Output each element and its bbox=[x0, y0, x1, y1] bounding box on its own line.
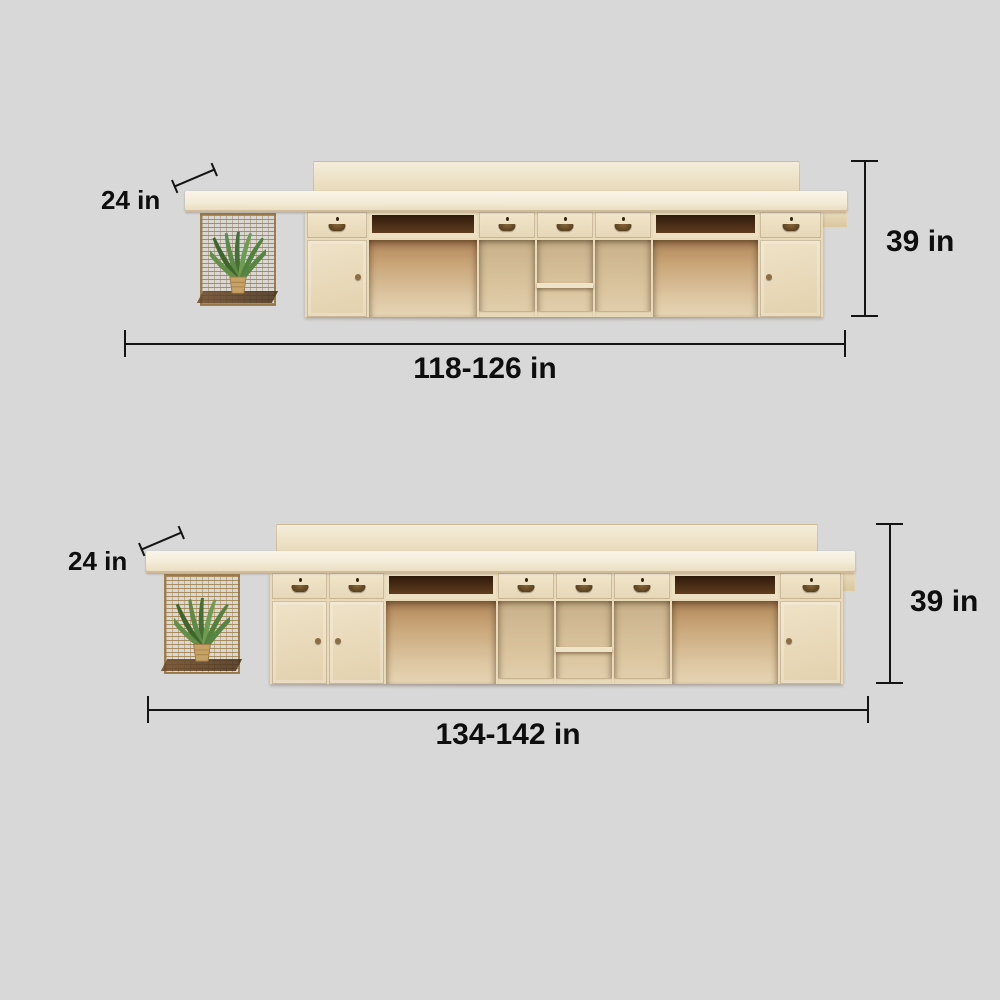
desk-countertop bbox=[185, 191, 847, 212]
open-slot bbox=[653, 212, 758, 238]
base-rail bbox=[479, 311, 535, 317]
width-dimension-line bbox=[147, 709, 869, 711]
drawer-handle-icon bbox=[291, 585, 308, 592]
open-shelf bbox=[479, 240, 535, 317]
base-rail bbox=[556, 678, 612, 684]
cabinet-door bbox=[307, 240, 367, 317]
height-dimension-line bbox=[864, 160, 866, 317]
cabinet-door bbox=[780, 601, 841, 684]
height-label: 39 in bbox=[886, 226, 954, 258]
keyhole-icon bbox=[506, 217, 509, 221]
shelf-board bbox=[537, 283, 593, 288]
drawer-column bbox=[614, 573, 670, 684]
drawer-handle-icon bbox=[634, 585, 651, 592]
door-knob-icon bbox=[786, 638, 792, 644]
width-dimension-line bbox=[124, 343, 846, 345]
keyhole-icon bbox=[356, 578, 359, 582]
drawer-column bbox=[556, 573, 612, 684]
desk-body bbox=[305, 212, 823, 317]
drawer-column bbox=[479, 212, 535, 317]
drawer bbox=[329, 573, 384, 599]
drawer-handle-icon bbox=[782, 224, 799, 231]
width-label: 134-142 in bbox=[308, 719, 708, 751]
keyhole-icon bbox=[336, 217, 339, 221]
drawer bbox=[479, 212, 535, 238]
wire-plant-cage bbox=[200, 213, 276, 306]
shelf-board bbox=[556, 647, 612, 652]
drawer-column bbox=[595, 212, 651, 317]
cabinet-door bbox=[760, 240, 821, 317]
open-shelf bbox=[614, 601, 670, 684]
drawer bbox=[307, 212, 367, 238]
right-cabinet bbox=[760, 212, 821, 317]
wire-plant-cage bbox=[164, 574, 240, 674]
open-slot bbox=[369, 212, 477, 238]
plant-icon bbox=[210, 219, 266, 300]
cabinet-door bbox=[329, 601, 384, 684]
desk-body bbox=[270, 573, 843, 684]
keyhole-icon bbox=[299, 578, 302, 582]
drawer-handle-icon bbox=[518, 585, 535, 592]
diagram-canvas: 24 in 39 in 118-126 in bbox=[0, 0, 1000, 1000]
keyhole-icon bbox=[622, 217, 625, 221]
counter-end-panel bbox=[820, 211, 847, 227]
cabinet-door bbox=[272, 601, 327, 684]
drawer-handle-icon bbox=[499, 224, 516, 231]
base-rail bbox=[614, 678, 670, 684]
open-shelf bbox=[595, 240, 651, 317]
drawer bbox=[272, 573, 327, 599]
open-shelf bbox=[556, 601, 612, 684]
open-slot bbox=[386, 573, 496, 599]
drawer bbox=[556, 573, 612, 599]
height-dimension-line bbox=[889, 523, 891, 684]
door-knob-icon bbox=[766, 274, 772, 280]
width-label: 118-126 in bbox=[285, 353, 685, 385]
figure-desk-large: 24 in 39 in 134-142 in bbox=[0, 0, 1000, 1000]
desk-backsplash bbox=[276, 524, 818, 553]
drawer-handle-icon bbox=[348, 585, 365, 592]
height-label: 39 in bbox=[910, 586, 978, 618]
base-rail bbox=[595, 311, 651, 317]
open-bay bbox=[653, 212, 758, 317]
kneehole bbox=[369, 240, 477, 317]
left-cabinet bbox=[272, 573, 327, 684]
drawer-handle-icon bbox=[329, 224, 346, 231]
kneehole bbox=[672, 601, 778, 684]
door-knob-icon bbox=[355, 274, 361, 280]
drawer bbox=[498, 573, 554, 599]
open-shelf bbox=[537, 240, 593, 317]
drawer bbox=[537, 212, 593, 238]
desk-countertop bbox=[146, 551, 855, 573]
keyhole-icon bbox=[583, 578, 586, 582]
drawer bbox=[614, 573, 670, 599]
open-shelf bbox=[498, 601, 554, 684]
drawer-handle-icon bbox=[576, 585, 593, 592]
drawer-column bbox=[537, 212, 593, 317]
drawer bbox=[595, 212, 651, 238]
base-rail bbox=[498, 678, 554, 684]
drawer-column bbox=[498, 573, 554, 684]
keyhole-icon bbox=[790, 217, 793, 221]
base-rail bbox=[537, 311, 593, 317]
right-cabinet bbox=[780, 573, 841, 684]
drawer bbox=[780, 573, 841, 599]
keyhole-icon bbox=[525, 578, 528, 582]
door-knob-icon bbox=[335, 638, 341, 644]
open-slot bbox=[672, 573, 778, 599]
drawer-handle-icon bbox=[557, 224, 574, 231]
drawer-handle-icon bbox=[802, 585, 819, 592]
keyhole-icon bbox=[810, 578, 813, 582]
kneehole bbox=[386, 601, 496, 684]
drawer bbox=[760, 212, 821, 238]
keyhole-icon bbox=[641, 578, 644, 582]
left-cabinet-2 bbox=[329, 573, 384, 684]
keyhole-icon bbox=[564, 217, 567, 221]
open-bay bbox=[386, 573, 496, 684]
drawer-handle-icon bbox=[615, 224, 632, 231]
open-bay bbox=[369, 212, 477, 317]
open-bay bbox=[672, 573, 778, 684]
kneehole bbox=[653, 240, 758, 317]
depth-dimension-line bbox=[140, 531, 182, 550]
door-knob-icon bbox=[315, 638, 321, 644]
depth-label: 24 in bbox=[68, 548, 127, 575]
depth-label: 24 in bbox=[101, 187, 160, 214]
left-cabinet bbox=[307, 212, 367, 317]
plant-icon bbox=[174, 585, 230, 668]
